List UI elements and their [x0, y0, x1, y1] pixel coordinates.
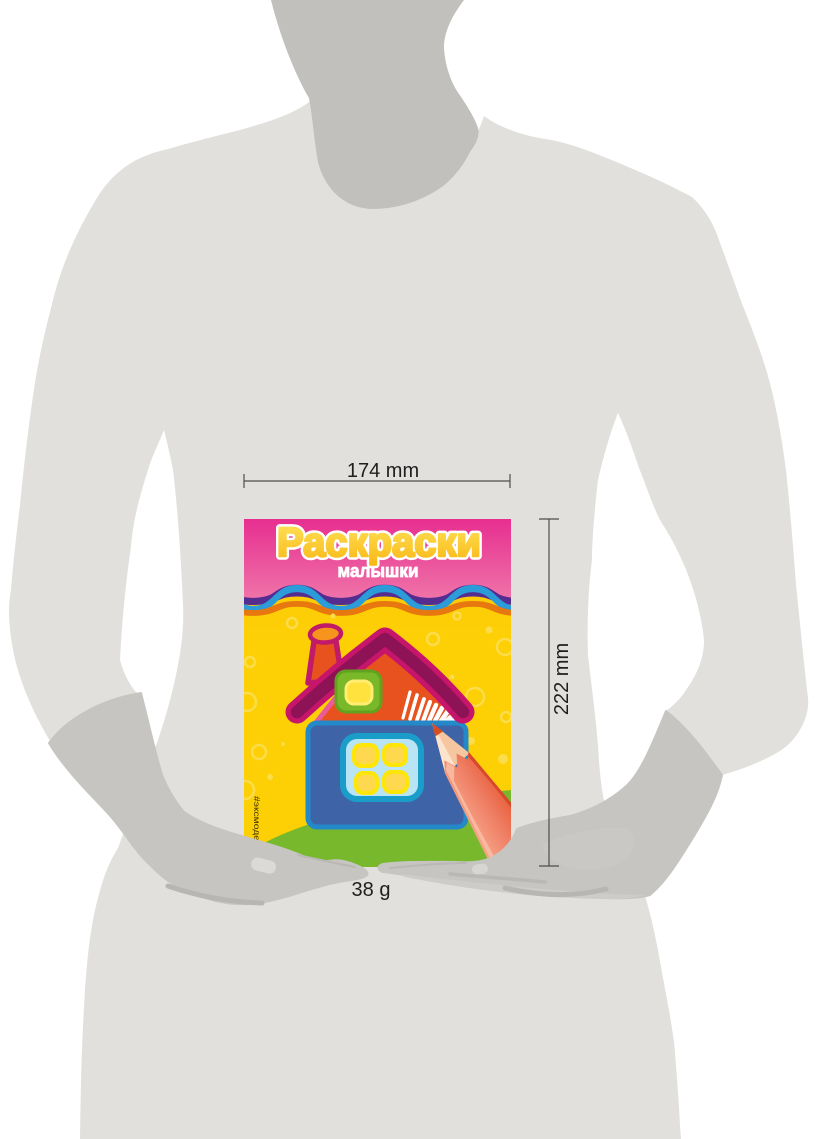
svg-text:38 g: 38 g — [352, 879, 391, 901]
svg-text:174 mm: 174 mm — [347, 460, 419, 482]
svg-text:222 mm: 222 mm — [551, 643, 573, 715]
svg-text:Раскраски: Раскраски — [277, 519, 481, 565]
svg-text:малышки: малышки — [338, 560, 419, 581]
